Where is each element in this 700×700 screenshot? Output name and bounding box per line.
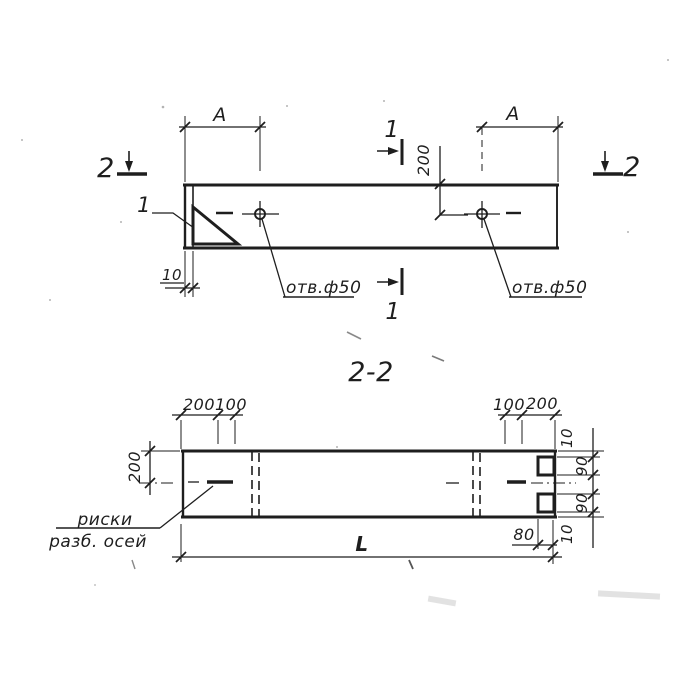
section-title: 2-2 xyxy=(348,357,394,388)
hole-left xyxy=(242,201,279,227)
dim-length: L xyxy=(172,520,562,564)
dim-a-right-label: A xyxy=(504,103,520,125)
beam-outline-plan xyxy=(183,184,559,249)
notch-bottom xyxy=(538,494,554,512)
section-mark-1-bottom: 1 xyxy=(377,268,402,325)
section-mark-1-top: 1 xyxy=(377,117,402,165)
dim-top-left-200: 200 xyxy=(183,395,215,414)
dim-right-stack: 10 90 90 10 xyxy=(557,428,604,548)
dim-a-left: A xyxy=(179,104,266,182)
dim-right-90-top: 90 xyxy=(573,456,591,476)
axis-note-line2: разб. осей xyxy=(48,532,147,552)
section-view: 2-2 xyxy=(48,357,604,564)
dim-200-plan-label: 200 xyxy=(414,144,433,176)
hidden-lines-right xyxy=(473,452,480,516)
dim-200-left-label: 200 xyxy=(125,451,144,483)
beam-outline-section xyxy=(181,450,557,518)
engineering-drawing: A A 200 10 xyxy=(0,0,700,700)
detail-callout-1-label: 1 xyxy=(137,193,151,217)
section-mark-2-right: 2 xyxy=(593,151,641,183)
notch-top xyxy=(538,457,554,475)
dim-right-90-bottom: 90 xyxy=(573,493,591,513)
drawing-canvas: A A 200 10 xyxy=(0,0,700,700)
section-mark-2-left-label: 2 xyxy=(97,153,115,184)
hole-label-right-text: отв.ф50 xyxy=(512,278,587,298)
dim-200-plan: 200 xyxy=(414,144,468,220)
axis-note: риски разб. осей xyxy=(48,486,213,552)
dim-200-left-section: 200 xyxy=(125,441,180,495)
dim-a-left-label: A xyxy=(211,104,227,126)
hole-right xyxy=(464,201,500,228)
hole-label-left-text: отв.ф50 xyxy=(286,278,361,298)
centerline-right xyxy=(446,482,576,483)
dim-top-left: 200 100 xyxy=(172,395,247,449)
dim-top-right: 100 200 xyxy=(493,394,562,449)
section-mark-1-bottom-label: 1 xyxy=(385,299,400,325)
dim-10-plan-label: 10 xyxy=(162,266,182,284)
dim-80-label: 80 xyxy=(513,525,534,544)
axis-note-line1: риски xyxy=(76,510,132,530)
dim-10-plan: 10 xyxy=(160,251,200,297)
plan-view: A A 200 10 xyxy=(97,103,641,325)
dim-top-right-200: 200 xyxy=(526,394,558,413)
section-mark-2-left: 2 xyxy=(97,151,147,184)
dim-top-right-100: 100 xyxy=(493,395,525,414)
dim-top-left-100: 100 xyxy=(215,395,247,414)
dim-length-label: L xyxy=(355,532,368,556)
hole-label-left: отв.ф50 xyxy=(262,219,361,298)
dim-a-right: A xyxy=(476,103,563,182)
dim-80: 80 xyxy=(512,519,558,550)
section-mark-2-right-label: 2 xyxy=(623,152,641,183)
dim-right-10-bottom: 10 xyxy=(558,524,576,544)
centerline-left xyxy=(139,482,233,483)
section-mark-1-top-label: 1 xyxy=(384,117,399,143)
dim-right-10-top: 10 xyxy=(558,428,576,448)
hidden-lines-left xyxy=(252,452,259,516)
hole-label-right: отв.ф50 xyxy=(484,219,587,298)
